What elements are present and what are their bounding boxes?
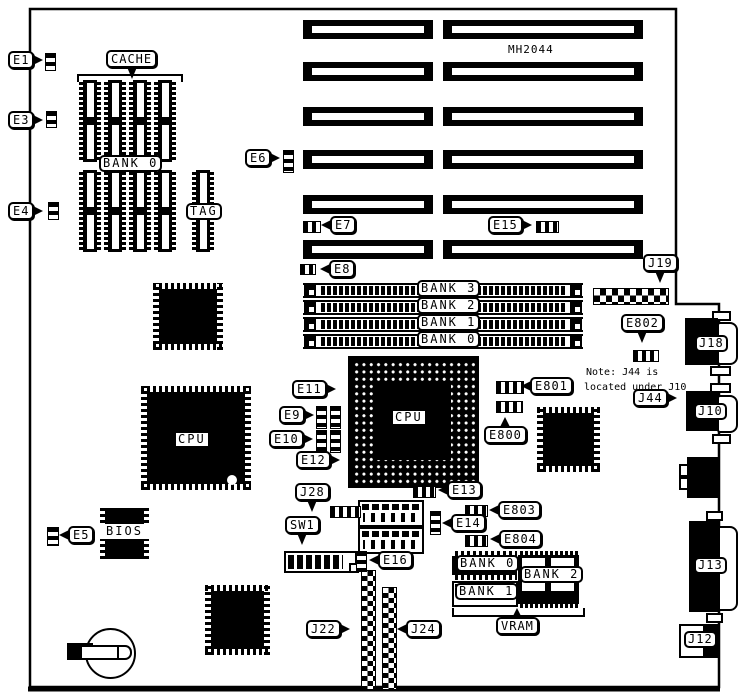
callout-j44: J44 <box>633 389 668 407</box>
qfp-chip <box>537 407 600 472</box>
e14-jumper <box>430 511 441 535</box>
callout-e8: E8 <box>329 260 355 278</box>
audio-jack-block <box>687 457 720 498</box>
callout-cache: CACHE <box>106 50 157 68</box>
port-flange <box>710 366 731 376</box>
cache-chip <box>154 170 176 252</box>
isa-slot-segment <box>303 240 433 259</box>
callout-e1: E1 <box>8 51 34 69</box>
board-model-text: MH2044 <box>508 43 554 56</box>
j24-connector <box>382 587 397 690</box>
e4-jumper <box>48 202 59 220</box>
port-flange <box>706 613 723 623</box>
j18-label: J18 <box>695 335 728 352</box>
e8-jumper <box>300 264 316 275</box>
j22-connector <box>361 570 376 690</box>
callout-e5: E5 <box>68 526 94 544</box>
cache-chip <box>79 170 101 252</box>
callout-e804: E804 <box>499 530 542 548</box>
callout-e14: E14 <box>451 514 486 532</box>
j12-label: J12 <box>684 631 717 648</box>
e3-jumper <box>46 111 57 128</box>
e1-jumper <box>45 53 56 71</box>
isa-slot-segment <box>303 20 433 39</box>
cpu-chip-label: CPU <box>174 431 210 448</box>
callout-e9: E9 <box>279 406 305 424</box>
e13-jumper <box>413 486 436 498</box>
callout-e800: E800 <box>484 426 527 444</box>
e11-jumper <box>330 406 341 429</box>
callout-sw1: SW1 <box>285 516 320 534</box>
battery-clip <box>80 645 132 660</box>
simm-bank1-label: BANK 1 <box>417 314 480 331</box>
isa-slot-segment <box>303 62 433 81</box>
e800-jumper <box>496 401 523 413</box>
isa-slot-segment <box>303 107 433 126</box>
e804-jumper <box>465 535 488 547</box>
isa-slot-segment <box>443 240 643 259</box>
callout-e3: E3 <box>8 111 34 129</box>
callout-j22: J22 <box>306 620 341 638</box>
cache-chip <box>129 80 151 162</box>
callout-e803: E803 <box>498 501 541 519</box>
e6-jumper <box>283 150 294 173</box>
tag-label: TAG <box>186 203 222 220</box>
e7-jumper <box>303 221 321 233</box>
j10-label: J10 <box>694 403 727 420</box>
sw1-dip-switch <box>284 551 357 573</box>
isa-slot-segment <box>303 195 433 214</box>
cache-chip <box>104 80 126 162</box>
cache-chip <box>104 170 126 252</box>
e12-jumper <box>330 430 341 453</box>
bios-label: BIOS <box>97 524 152 539</box>
isa-slot-segment <box>443 107 643 126</box>
callout-e12: E12 <box>296 451 331 469</box>
callout-e13: E13 <box>447 481 482 499</box>
callout-j28: J28 <box>295 483 330 501</box>
callout-e6: E6 <box>245 149 271 167</box>
isa-slot-segment <box>443 20 643 39</box>
j19-connector <box>593 288 669 305</box>
e802-jumper <box>633 350 659 362</box>
callout-e7: E7 <box>330 216 356 234</box>
qfp-chip <box>153 283 223 350</box>
cache-chip <box>129 170 151 252</box>
power-connector <box>358 527 424 554</box>
cpu-chip-pin1-dot <box>227 475 237 485</box>
vram-bank0-label: BANK 0 <box>456 555 519 572</box>
isa-slot-segment <box>443 62 643 81</box>
simm-bank0-label: BANK 0 <box>417 331 480 348</box>
isa-slot-segment <box>443 195 643 214</box>
e5-jumper <box>47 527 59 546</box>
vram-bank1-label: BANK 1 <box>455 583 518 600</box>
j28-connector <box>330 506 361 518</box>
motherboard-diagram: E1 E3 E4 CACHE BANK 0 TAG MH2044 E6 E7 E… <box>0 0 741 696</box>
simm-bank2-label: BANK 2 <box>417 297 480 314</box>
power-connector <box>358 500 424 527</box>
e16-jumper <box>356 551 367 572</box>
cache-chip <box>79 80 101 162</box>
callout-e11: E11 <box>292 380 327 398</box>
cache-chip <box>154 80 176 162</box>
callout-e15: E15 <box>488 216 523 234</box>
e801-jumper <box>496 381 524 394</box>
isa-slot-segment <box>443 150 643 169</box>
callout-e10: E10 <box>269 430 304 448</box>
e10-jumper <box>316 430 327 453</box>
port-flange <box>712 434 731 444</box>
e9-jumper <box>316 406 327 429</box>
callout-e801: E801 <box>530 377 573 395</box>
simm-bank3-label: BANK 3 <box>417 280 480 297</box>
callout-e16: E16 <box>378 551 413 569</box>
callout-j24: J24 <box>406 620 441 638</box>
isa-slot-segment <box>303 150 433 169</box>
callout-j19: J19 <box>643 254 678 272</box>
cache-bank0-label: BANK 0 <box>99 155 162 172</box>
cpu-socket-label: CPU <box>391 409 427 426</box>
qfp-chip <box>205 585 270 655</box>
vram-bank2-label: BANK 2 <box>520 566 583 583</box>
callout-e802: E802 <box>621 314 664 332</box>
e15-jumper <box>536 221 559 233</box>
port-flange <box>706 511 723 521</box>
j13-label: J13 <box>694 557 727 574</box>
callout-vram: VRAM <box>496 617 539 635</box>
note-line-1: Note: J44 is <box>586 367 658 378</box>
callout-e4: E4 <box>8 202 34 220</box>
